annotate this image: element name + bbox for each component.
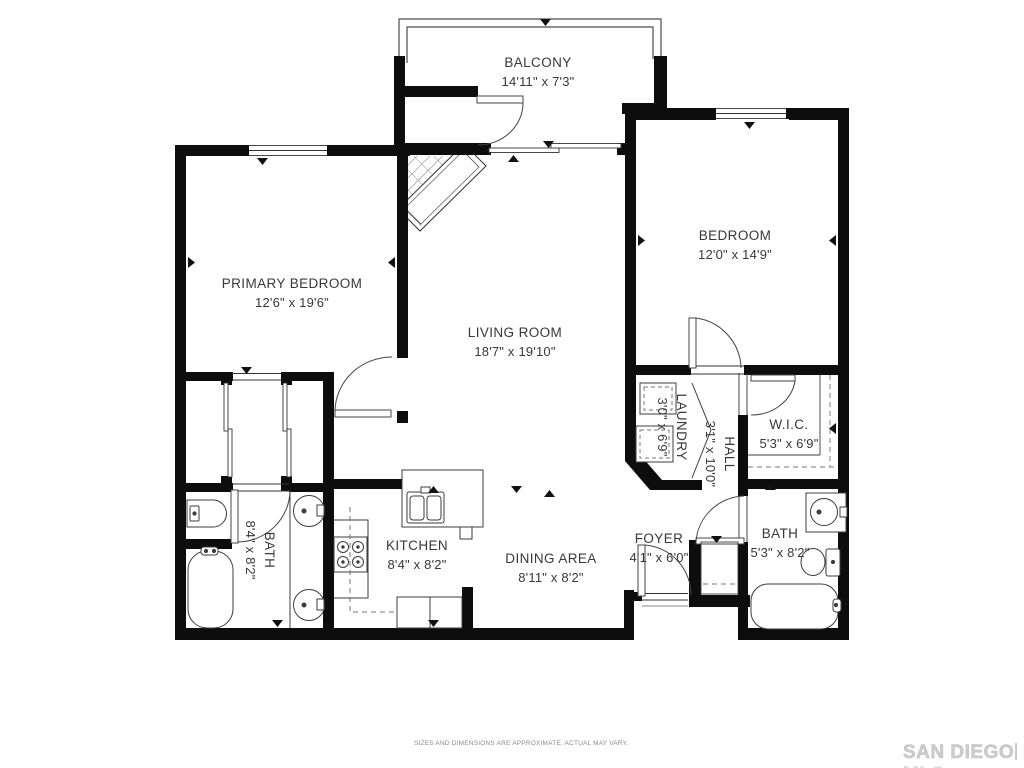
room-dims: 12'6" x 19'6" [222,293,363,312]
room-name: LAUNDRY [672,393,691,460]
room-dims: 12'0" x 14'9" [698,245,772,264]
window-primary-bedroom [244,145,332,156]
sliding-door-balcony [489,144,621,153]
room-dims: 8'4" x 8'2" [241,520,260,579]
double-vanity [290,492,325,628]
room-label-laundry: LAUNDRY 3'0" x 6'9" [653,393,691,460]
room-dims: 14'11" x 7'3" [502,72,575,91]
opening-closet-corridor [232,374,281,381]
disclaimer-text: SIZES AND DIMENSIONS ARE APPROXIMATE, AC… [414,740,628,747]
floor-plan: BALCONY 14'11" x 7'3" PRIMARY BEDROOM 12… [0,0,1024,768]
watermark-divider [1015,743,1017,760]
room-dims: 8'4" x 8'2" [386,555,448,574]
room-name: BATH [750,524,809,543]
bathtub-icon [188,547,233,628]
door-primary-bedroom [335,357,392,417]
window-bedroom [711,108,791,119]
door-wic [751,375,795,415]
room-label-living-room: LIVING ROOM 18'7" x 19'10" [468,323,562,361]
room-label-wic: W.I.C. 5'3" x 6'9" [759,415,818,453]
room-dims: 5'3" x 6'9" [759,434,818,453]
room-name: PRIMARY BEDROOM [222,274,363,293]
room-label-balcony: BALCONY 14'11" x 7'3" [502,53,575,91]
opening-wic [739,373,747,415]
opening-primary-bath [233,484,289,491]
room-dims: 18'7" x 19'10" [468,342,562,361]
floor-plan-drawing [0,0,1024,768]
room-name: KITCHEN [386,536,448,555]
room-name: HALL [720,421,739,487]
room-name: W.I.C. [759,415,818,434]
room-name: BEDROOM [698,226,772,245]
room-dims: 4'1" x 6'0" [629,548,688,567]
room-name: BATH [260,520,279,579]
toilet-icon [187,500,227,527]
cased-opening-bedroom [691,366,744,374]
door-balcony-storage [477,96,523,145]
bypass-doors-closet-2 [283,383,291,477]
room-name: BALCONY [502,53,575,72]
room-label-primary-bedroom: PRIMARY BEDROOM 12'6" x 19'6" [222,274,363,312]
room-label-foyer: FOYER 4'1" x 6'0" [629,529,688,567]
opening-hall-bath [739,496,747,542]
room-name: LIVING ROOM [468,323,562,342]
room-name: DINING AREA [505,549,596,568]
bypass-doors-closet-1 [224,383,232,477]
room-label-hall-bath: BATH 5'3" x 8'2" [750,524,809,562]
room-label-hall: HALL 3'1" x 10'0" [701,421,739,487]
mls-watermark: SAN DIEGOMLS [903,742,1024,768]
refrigerator-icon [397,597,430,628]
room-label-primary-bath: BATH 8'4" x 8'2" [241,520,279,579]
room-name: FOYER [629,529,688,548]
watermark-suffix: MLS [903,764,945,768]
room-dims: 3'1" x 10'0" [701,421,720,487]
foyer-closet [701,542,738,594]
opening-entry [642,594,688,607]
room-dims: 8'11" x 8'2" [505,568,596,587]
door-bedroom [689,318,741,368]
bathtub-icon-2 [751,584,841,629]
vanity-sink-icon [806,493,847,532]
room-dims: 3'0" x 6'9" [653,393,672,460]
watermark-brand: SAN DIEGO [903,742,1014,763]
room-label-kitchen: KITCHEN 8'4" x 8'2" [386,536,448,574]
room-label-bedroom: BEDROOM 12'0" x 14'9" [698,226,772,264]
room-dims: 5'3" x 8'2" [750,543,809,562]
room-label-dining-area: DINING AREA 8'11" x 8'2" [505,549,596,587]
fireplace-icon [398,144,486,231]
